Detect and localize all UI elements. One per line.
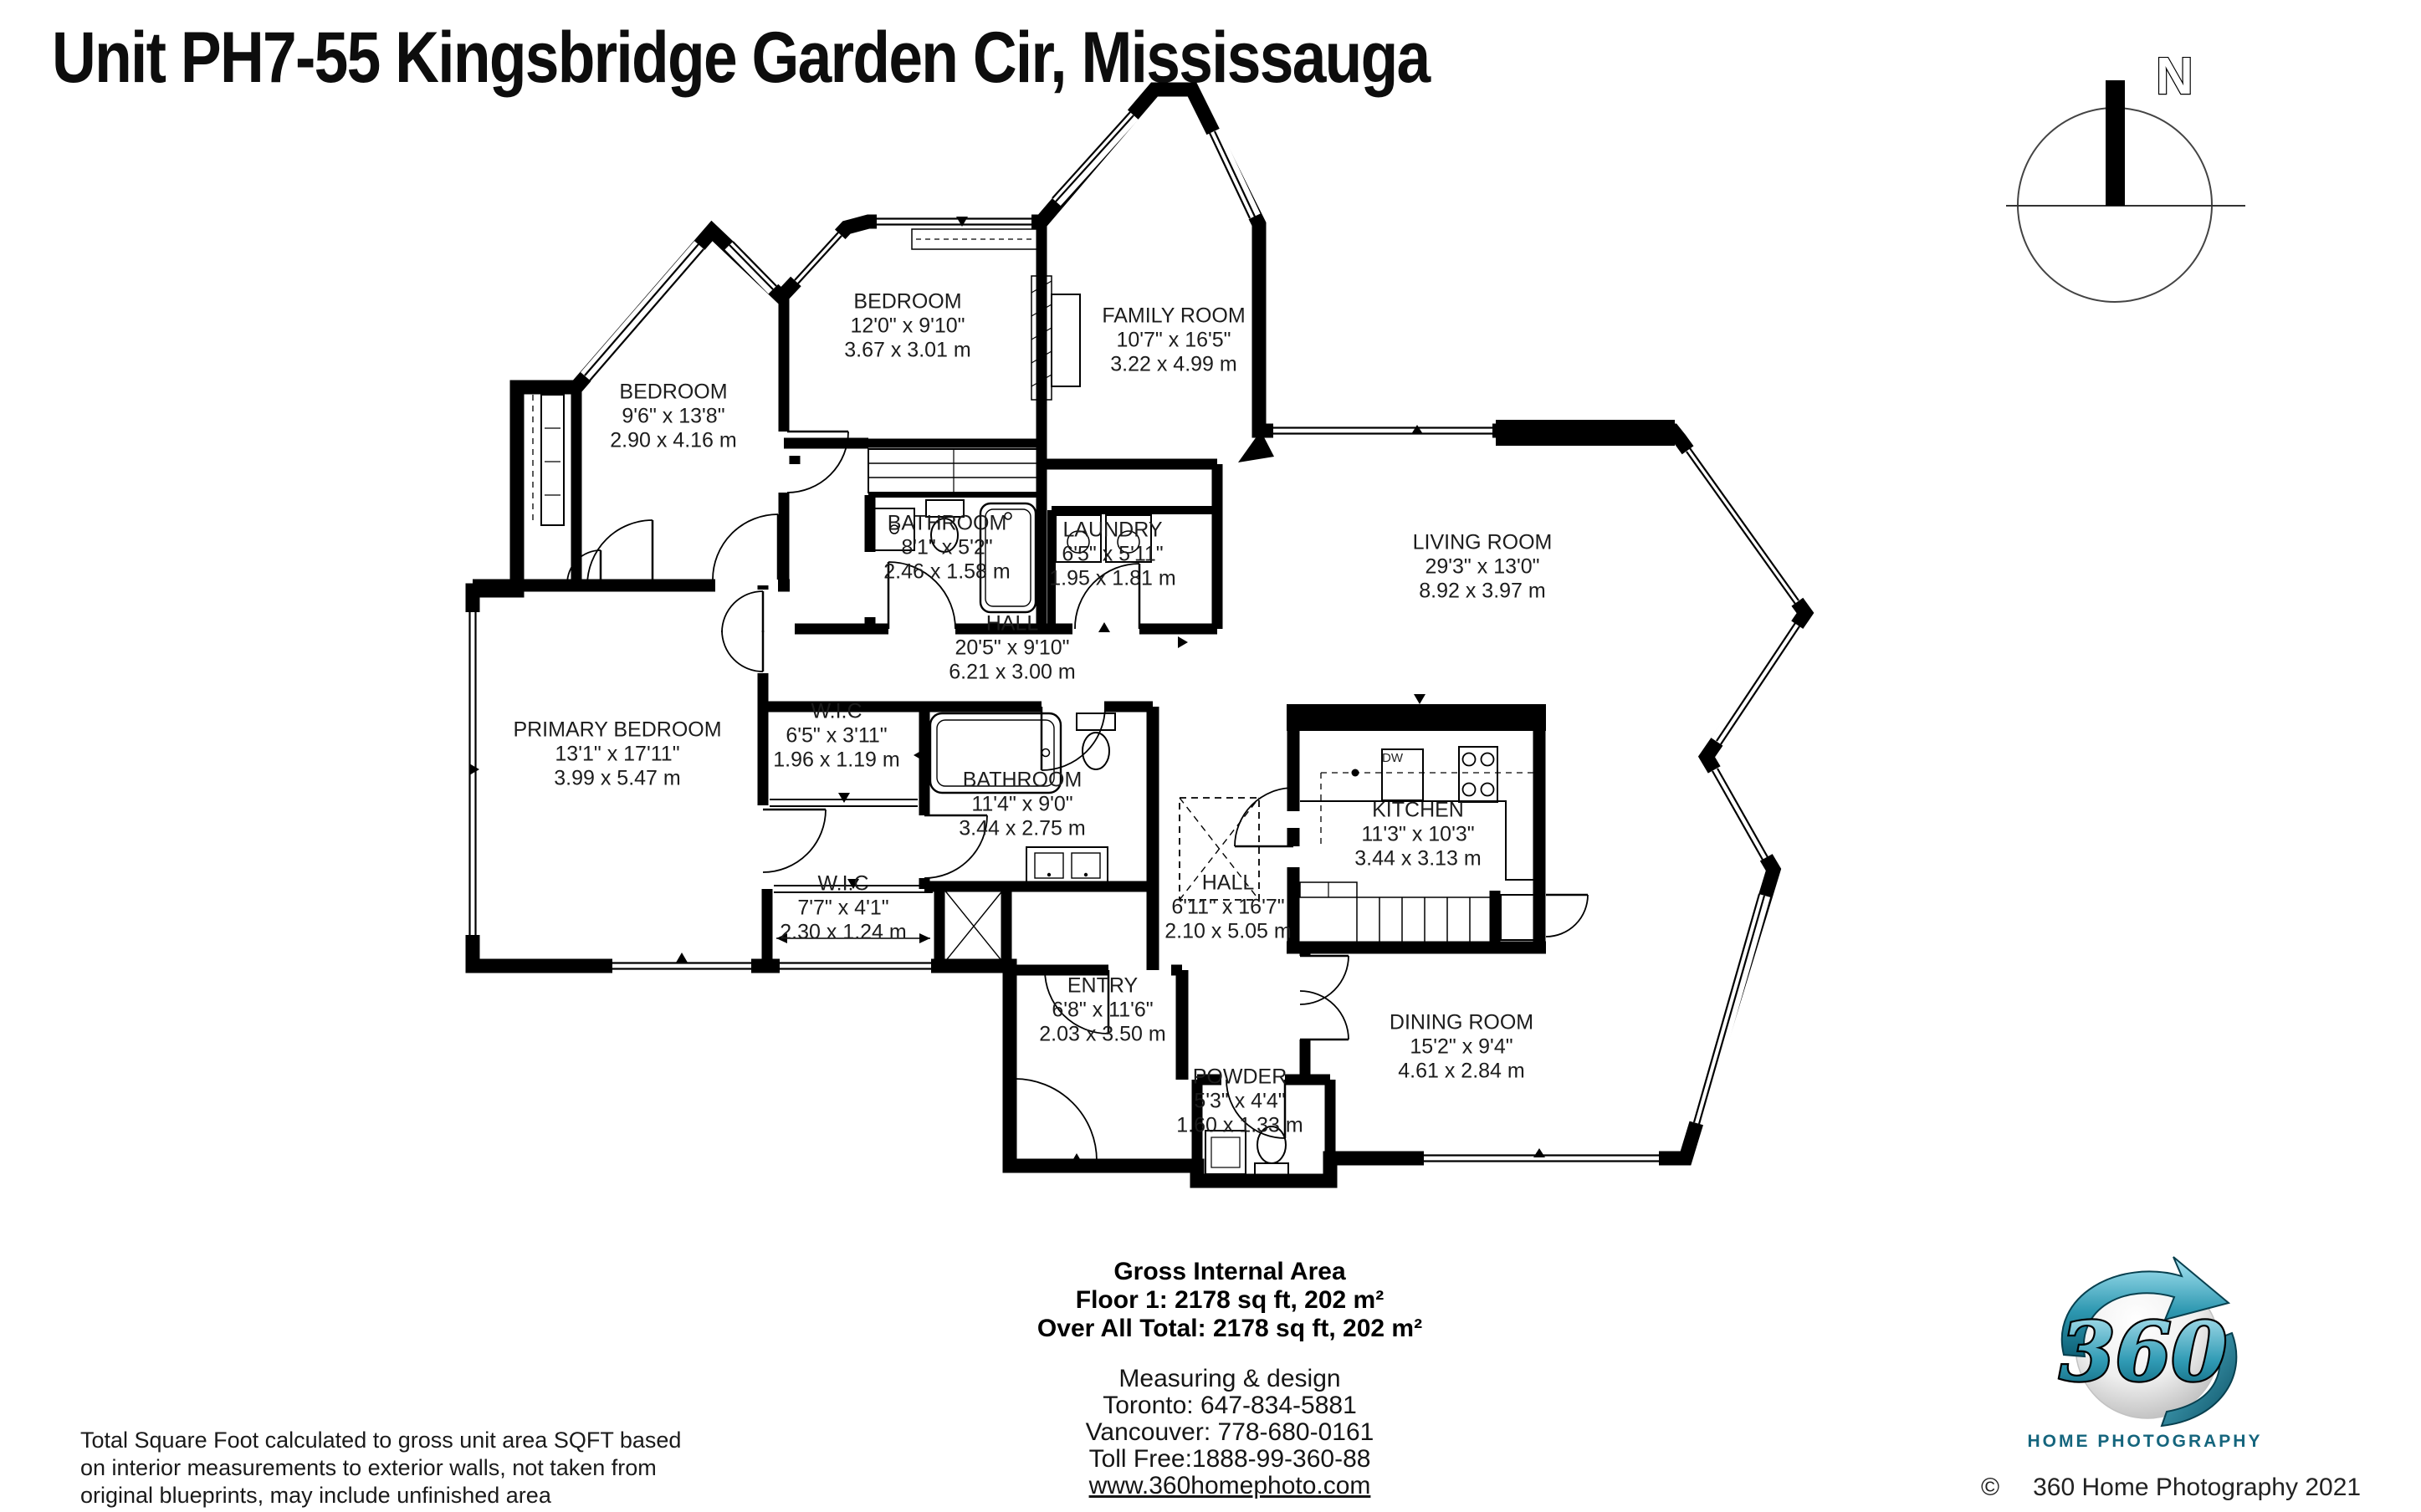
room-name: BEDROOM: [844, 290, 970, 314]
room-imperial: 6'5" x 3'11": [773, 724, 899, 748]
room-name: BATHROOM: [959, 769, 1085, 793]
room-name: KITCHEN: [1354, 799, 1481, 823]
north-compass: N: [2006, 48, 2245, 302]
room-label-hall-lower: HALL 6'11" x 16'7" 2.10 x 5.05 m: [1164, 871, 1291, 944]
room-metric: 3.67 x 3.01 m: [844, 339, 970, 363]
contact-tollfree: Toll Free:1888-99-360-88: [919, 1446, 1540, 1473]
copyright-text: 360 Home Photography 2021: [2033, 1474, 2361, 1501]
gross-area-heading: Gross Internal Area: [919, 1258, 1540, 1286]
copyright-symbol: ©: [1981, 1474, 1999, 1501]
room-name: ENTRY: [1039, 974, 1165, 999]
room-label-kitchen: KITCHEN 11'3" x 10'3" 3.44 x 3.13 m: [1354, 799, 1481, 871]
gross-area-floor1: Floor 1: 2178 sq ft, 202 m²: [919, 1286, 1540, 1315]
room-name: HALL: [1164, 871, 1291, 896]
room-metric: 4.61 x 2.84 m: [1390, 1060, 1533, 1084]
room-imperial: 11'3" x 10'3": [1354, 823, 1481, 847]
room-imperial: 29'3" x 13'0": [1413, 555, 1553, 580]
room-label-bedroom-top: BEDROOM 12'0" x 9'10" 3.67 x 3.01 m: [844, 290, 970, 363]
room-label-laundry: LAUNDRY 6'5" x 5'11" 1.95 x 1.81 m: [1049, 518, 1175, 591]
room-imperial: 6'8" x 11'6": [1039, 999, 1165, 1023]
room-imperial: 7'7" x 4'1": [780, 896, 906, 921]
room-metric: 3.44 x 2.75 m: [959, 817, 1085, 841]
room-metric: 3.44 x 3.13 m: [1354, 847, 1481, 871]
room-imperial: 20'5" x 9'10": [949, 636, 1075, 661]
room-imperial: 6'5" x 5'11": [1049, 543, 1175, 567]
room-imperial: 9'6" x 13'8": [610, 405, 736, 429]
room-name: W.I.C: [780, 872, 906, 896]
room-name: HALL: [949, 612, 1075, 636]
dishwasher-label: DW: [1382, 751, 1403, 765]
company-logo: 360 HOME PHOTOGRAPHY: [2018, 1253, 2285, 1462]
room-label-bedroom-left: BEDROOM 9'6" x 13'8" 2.90 x 4.16 m: [610, 381, 736, 453]
room-imperial: 10'7" x 16'5": [1102, 329, 1245, 353]
room-imperial: 15'2" x 9'4": [1390, 1035, 1533, 1060]
room-imperial: 12'0" x 9'10": [844, 314, 970, 339]
room-imperial: 8'1" x 5'2": [883, 536, 1010, 560]
room-metric: 2.03 x 3.50 m: [1039, 1023, 1165, 1047]
logo-360: 360: [2060, 1305, 2227, 1399]
floor-plan-page: Unit PH7-55 Kingsbridge Garden Cir, Miss…: [0, 0, 2421, 1512]
room-imperial: 5'3" x 4'4": [1176, 1090, 1303, 1114]
room-metric: 2.10 x 5.05 m: [1164, 920, 1291, 944]
room-name: BATHROOM: [883, 512, 1010, 536]
room-label-family-room: FAMILY ROOM 10'7" x 16'5" 3.22 x 4.99 m: [1102, 304, 1245, 377]
room-name: POWDER: [1176, 1065, 1303, 1090]
website-link[interactable]: www.360homephoto.com: [919, 1473, 1540, 1499]
room-name: BEDROOM: [610, 381, 736, 405]
gross-area-total: Over All Total: 2178 sq ft, 202 m²: [919, 1315, 1540, 1343]
room-name: PRIMARY BEDROOM: [513, 718, 721, 743]
logo-wordmark: HOME PHOTOGRAPHY: [2028, 1432, 2263, 1451]
room-metric: 1.96 x 1.19 m: [773, 748, 899, 773]
copyright-line: ©360 Home Photography 2021: [1981, 1474, 2361, 1502]
room-label-hall-upper: HALL 20'5" x 9'10" 6.21 x 3.00 m: [949, 612, 1075, 685]
room-metric: 1.95 x 1.81 m: [1049, 567, 1175, 591]
room-label-living-room: LIVING ROOM 29'3" x 13'0" 8.92 x 3.97 m: [1413, 531, 1553, 604]
gross-area-summary: Gross Internal Area Floor 1: 2178 sq ft,…: [919, 1258, 1540, 1343]
room-imperial: 11'4" x 9'0": [959, 793, 1085, 817]
room-name: DINING ROOM: [1390, 1011, 1533, 1035]
room-metric: 2.90 x 4.16 m: [610, 429, 736, 453]
contact-toronto: Toronto: 647-834-5881: [919, 1392, 1540, 1419]
room-label-wic-large: W.I.C 7'7" x 4'1" 2.30 x 1.24 m: [780, 872, 906, 945]
room-metric: 3.22 x 4.99 m: [1102, 353, 1245, 377]
room-imperial: 6'11" x 16'7": [1164, 896, 1291, 920]
room-label-bathroom-small: BATHROOM 8'1" x 5'2" 2.46 x 1.58 m: [883, 512, 1010, 585]
room-metric: 1.60 x 1.33 m: [1176, 1114, 1303, 1138]
room-imperial: 13'1" x 17'11": [513, 743, 721, 767]
room-label-entry: ENTRY 6'8" x 11'6" 2.03 x 3.50 m: [1039, 974, 1165, 1047]
room-label-powder: POWDER 5'3" x 4'4" 1.60 x 1.33 m: [1176, 1065, 1303, 1138]
room-label-wic-small: W.I.C 6'5" x 3'11" 1.96 x 1.19 m: [773, 700, 899, 773]
room-metric: 2.46 x 1.58 m: [883, 560, 1010, 585]
disclaimer-text: Total Square Foot calculated to gross un…: [80, 1427, 704, 1509]
room-metric: 6.21 x 3.00 m: [949, 661, 1075, 685]
contact-tagline: Measuring & design: [919, 1366, 1540, 1392]
room-metric: 8.92 x 3.97 m: [1413, 580, 1553, 604]
room-name: W.I.C: [773, 700, 899, 724]
room-label-primary-bedroom: PRIMARY BEDROOM 13'1" x 17'11" 3.99 x 5.…: [513, 718, 721, 791]
room-metric: 3.99 x 5.47 m: [513, 767, 721, 791]
room-label-dining-room: DINING ROOM 15'2" x 9'4" 4.61 x 2.84 m: [1390, 1011, 1533, 1084]
contact-block: Measuring & design Toronto: 647-834-5881…: [919, 1366, 1540, 1499]
room-label-bathroom-main: BATHROOM 11'4" x 9'0" 3.44 x 2.75 m: [959, 769, 1085, 841]
contact-vancouver: Vancouver: 778-680-0161: [919, 1419, 1540, 1446]
room-name: LIVING ROOM: [1413, 531, 1553, 555]
room-metric: 2.30 x 1.24 m: [780, 921, 906, 945]
room-name: FAMILY ROOM: [1102, 304, 1245, 329]
room-name: LAUNDRY: [1049, 518, 1175, 543]
north-label: N: [2156, 48, 2193, 105]
